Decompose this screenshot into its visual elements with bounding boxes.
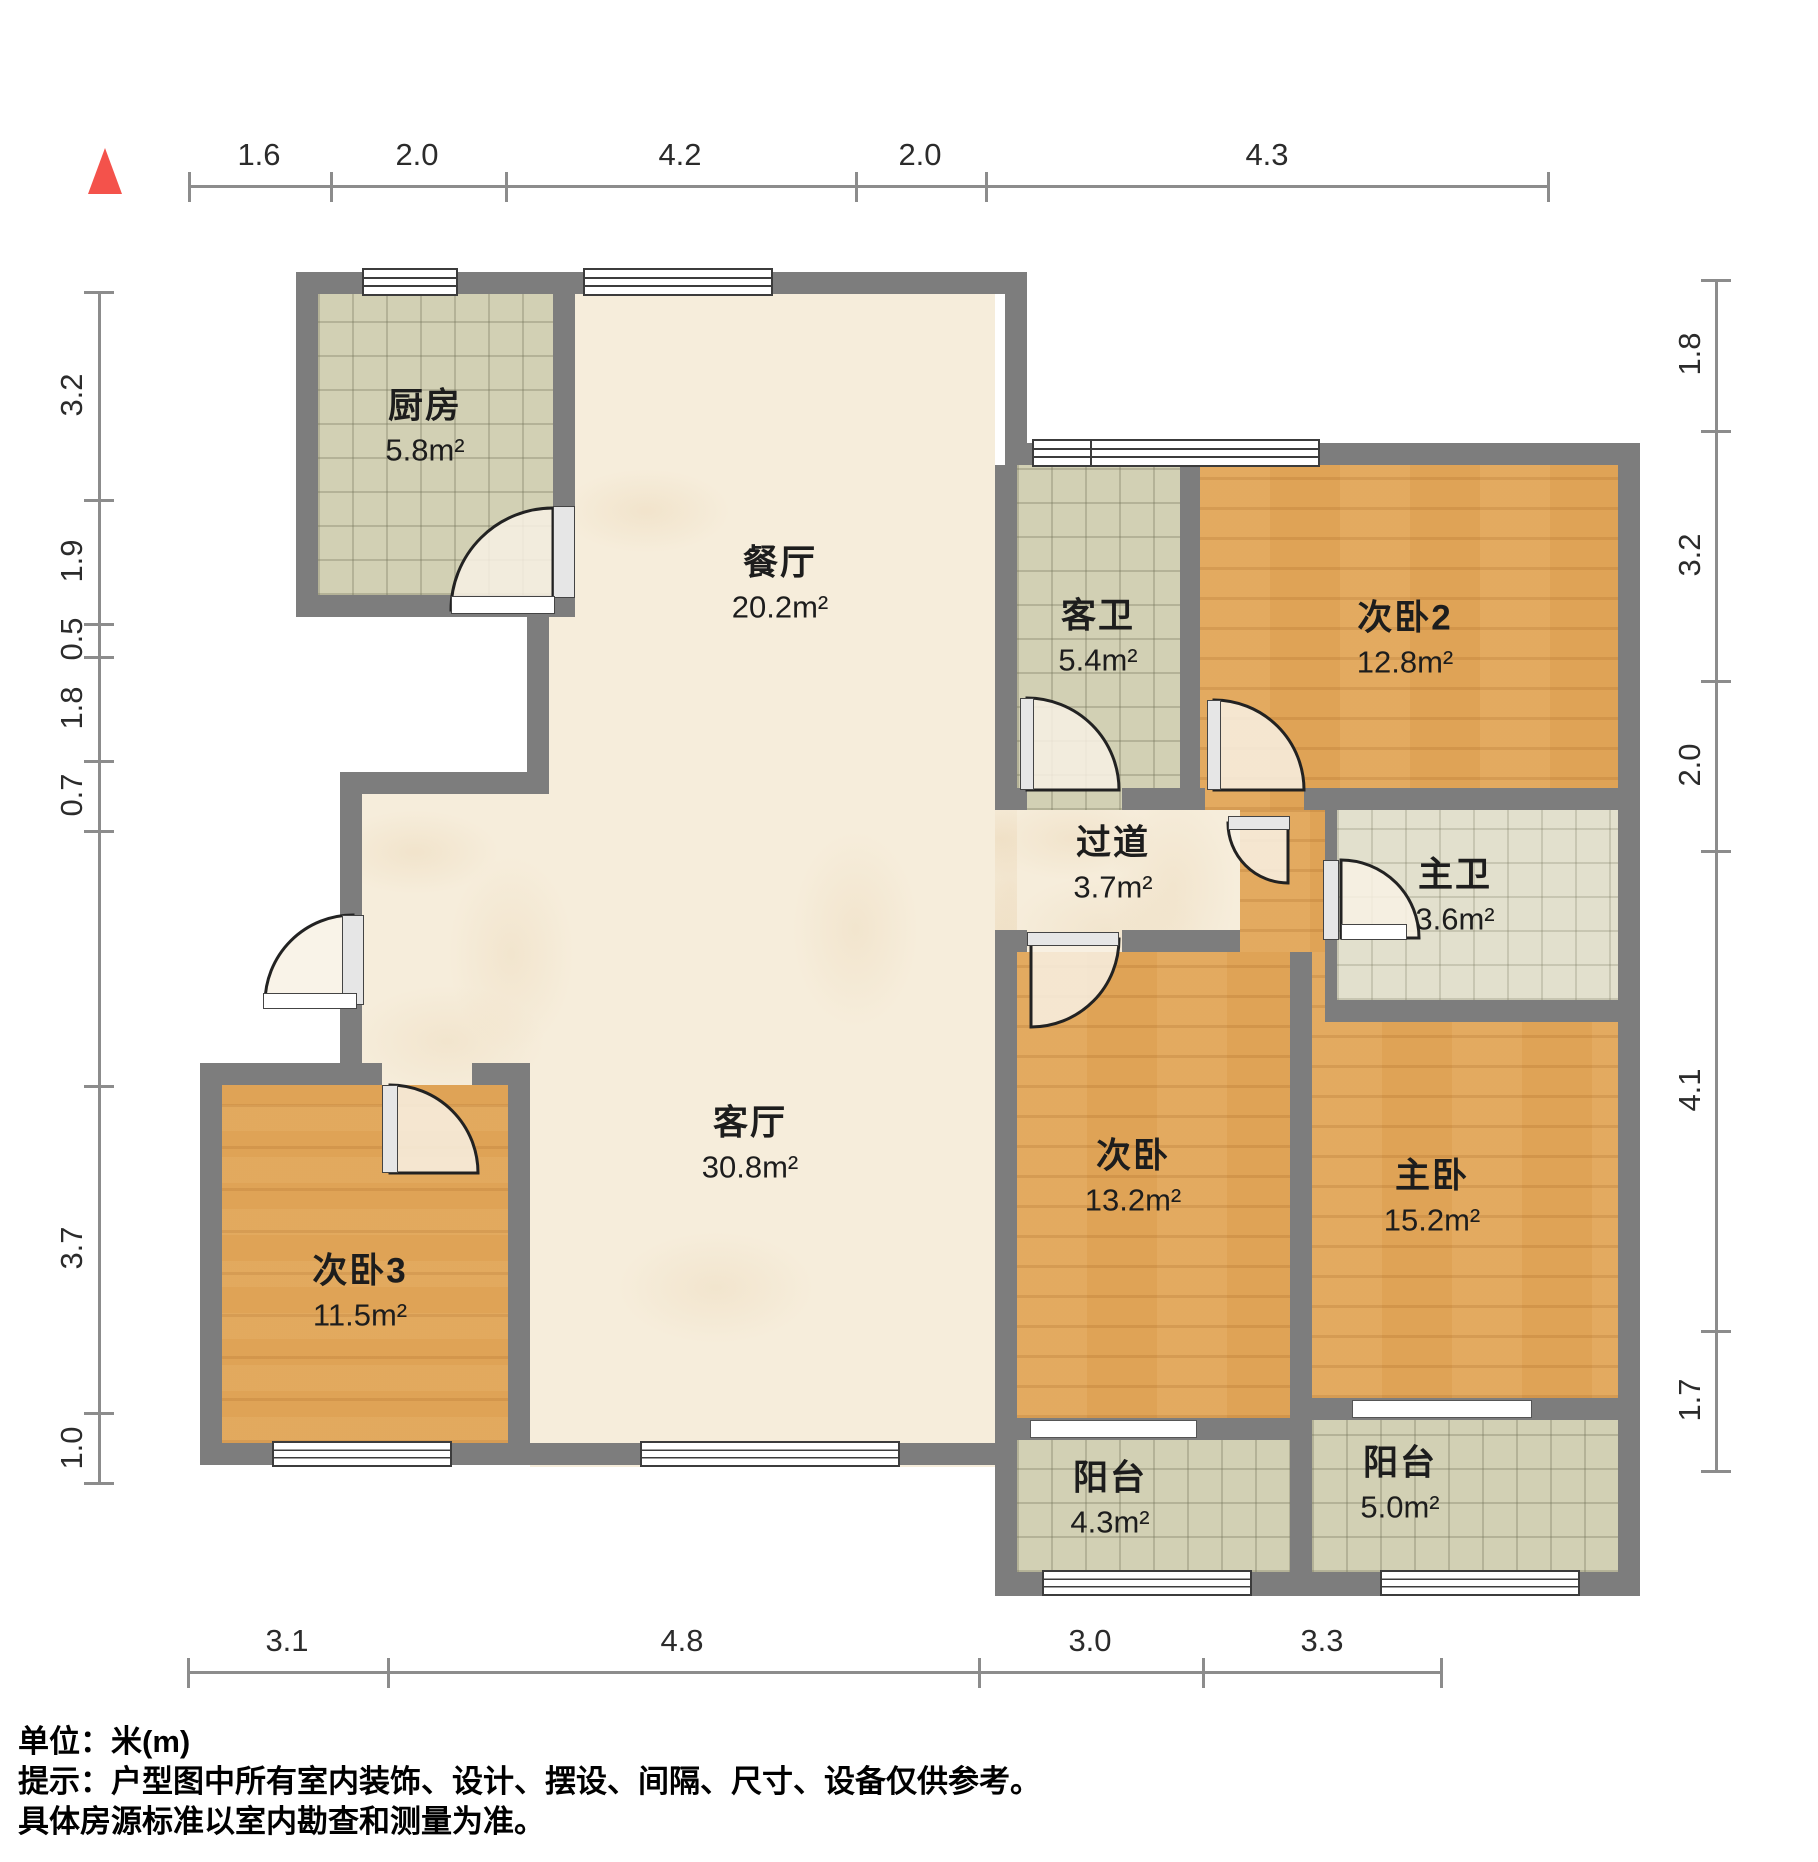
room-name: 主卧 [1384, 1148, 1480, 1199]
dim-label: 3.7 [54, 1226, 90, 1269]
room-label-kitchen: 厨房 5.8m² [385, 378, 464, 469]
room-label-balcony-left: 阳台 4.3m² [1070, 1450, 1149, 1541]
room-area: 5.0m² [1360, 1490, 1439, 1526]
room-area: 3.6m² [1415, 902, 1494, 938]
room-label-living: 客厅 30.8m² [702, 1095, 798, 1186]
footer-unit: 单位：米(m) [18, 1716, 190, 1761]
dim-tick [1701, 680, 1731, 683]
entry-door-sill [263, 993, 357, 1009]
dim-tick [187, 1658, 190, 1688]
guest-bath-door-arc [1027, 698, 1119, 790]
master-bath-door-leaf [1323, 860, 1339, 940]
dim-tick [84, 1085, 114, 1088]
dim-tick [84, 830, 114, 833]
bedroom3-door-arc [390, 1085, 478, 1173]
entry-door-leaf [342, 915, 364, 1005]
master-suite-door-leaf [1228, 816, 1290, 830]
room-label-bedroom: 次卧 13.2m² [1085, 1128, 1181, 1219]
dim-tick [387, 1658, 390, 1688]
dim-label: 3.0 [1068, 1623, 1111, 1659]
room-label-dining: 餐厅 20.2m² [732, 535, 828, 626]
room-name: 餐厅 [732, 535, 828, 586]
dimension-line-left [98, 291, 101, 1485]
bedroom2-door-arc [1214, 700, 1304, 790]
dim-label: 1.8 [1672, 332, 1708, 375]
kitchen-door-leaf [553, 506, 575, 598]
dim-tick [505, 172, 508, 202]
room-name: 阳台 [1360, 1435, 1439, 1486]
bedroom-door-leaf [1027, 932, 1119, 946]
room-name: 厨房 [385, 378, 464, 429]
dim-label: 3.2 [54, 373, 90, 416]
room-area: 20.2m² [732, 590, 828, 626]
dim-label: 3.3 [1300, 1623, 1343, 1659]
dim-label: 1.9 [54, 539, 90, 582]
room-name: 过道 [1073, 815, 1152, 866]
dim-tick [330, 172, 333, 202]
floor-plan: 厨房 5.8m² 餐厅 20.2m² 客卫 5.4m² 次卧2 12.8m² 过… [0, 0, 1818, 1862]
dim-label: 3.1 [265, 1623, 308, 1659]
dim-tick [1701, 850, 1731, 853]
dim-label: 2.0 [1672, 743, 1708, 786]
dim-tick [855, 172, 858, 202]
dim-tick [978, 1658, 981, 1688]
room-label-guest-bath: 客卫 5.4m² [1058, 588, 1137, 679]
dim-label: 3.2 [1672, 533, 1708, 576]
room-label-master-bedroom: 主卧 15.2m² [1384, 1148, 1480, 1239]
dimension-line-right [1715, 279, 1718, 1473]
bedroom3-door-leaf [382, 1085, 398, 1173]
dim-tick [985, 172, 988, 202]
footer-note-1: 提示：户型图中所有室内装饰、设计、摆设、间隔、尺寸、设备仅供参考。 [18, 1756, 1041, 1801]
room-name: 次卧 [1085, 1128, 1181, 1179]
kitchen-door-sill [451, 596, 555, 614]
bedroom2-door-leaf [1207, 700, 1221, 790]
dim-tick [1547, 172, 1550, 202]
dim-tick [84, 291, 114, 294]
room-label-corridor: 过道 3.7m² [1073, 815, 1152, 906]
room-area: 4.3m² [1070, 1505, 1149, 1541]
room-label-bedroom3: 次卧3 11.5m² [312, 1243, 407, 1334]
guest-bath-door-leaf [1020, 698, 1034, 790]
room-name: 客厅 [702, 1095, 798, 1146]
dim-label: 2.0 [898, 137, 941, 173]
room-label-master-bath: 主卫 3.6m² [1415, 847, 1494, 938]
room-name: 次卧3 [312, 1243, 407, 1294]
dim-label: 4.3 [1245, 137, 1288, 173]
dim-label: 4.1 [1672, 1068, 1708, 1111]
room-area: 15.2m² [1384, 1203, 1480, 1239]
dim-label: 4.2 [658, 137, 701, 173]
dim-tick [1701, 1330, 1731, 1333]
dim-tick [1701, 1470, 1731, 1473]
dim-label: 1.0 [54, 1426, 90, 1469]
dim-tick [84, 1412, 114, 1415]
dim-label: 2.0 [395, 137, 438, 173]
kitchen-door-arc [451, 508, 553, 610]
dim-tick [1701, 279, 1731, 282]
entry-door-arc [265, 915, 353, 1003]
master-bath-door-sill [1341, 924, 1407, 940]
room-area: 3.7m² [1073, 870, 1152, 906]
dim-label: 4.8 [660, 1623, 703, 1659]
bedroom-door-arc [1031, 939, 1119, 1027]
room-name: 阳台 [1070, 1450, 1149, 1501]
dim-label: 1.8 [54, 686, 90, 729]
room-label-bedroom2: 次卧2 12.8m² [1357, 590, 1453, 681]
master-suite-door-arc [1228, 823, 1288, 883]
room-area: 5.4m² [1058, 643, 1137, 679]
dim-tick [84, 760, 114, 763]
dim-label: 0.7 [54, 773, 90, 816]
dim-label: 1.7 [1672, 1378, 1708, 1421]
dim-tick [188, 172, 191, 202]
dimension-line-bottom [187, 1671, 1443, 1674]
room-area: 5.8m² [385, 433, 464, 469]
room-area: 12.8m² [1357, 645, 1453, 681]
dim-tick [84, 499, 114, 502]
dim-tick [1440, 1658, 1443, 1688]
dim-label: 0.5 [54, 617, 90, 660]
room-area: 30.8m² [702, 1150, 798, 1186]
footer-note-2: 具体房源标准以室内勘查和测量为准。 [18, 1796, 545, 1841]
room-name: 客卫 [1058, 588, 1137, 639]
dim-label: 1.6 [237, 137, 280, 173]
door-arcs-layer [0, 0, 1818, 1862]
room-area: 13.2m² [1085, 1183, 1181, 1219]
room-name: 次卧2 [1357, 590, 1453, 641]
dimension-line-top [188, 185, 1550, 188]
dim-tick [1701, 430, 1731, 433]
room-name: 主卫 [1415, 847, 1494, 898]
dim-tick [84, 1482, 114, 1485]
room-label-balcony-right: 阳台 5.0m² [1360, 1435, 1439, 1526]
dim-tick [1202, 1658, 1205, 1688]
room-area: 11.5m² [312, 1298, 407, 1334]
